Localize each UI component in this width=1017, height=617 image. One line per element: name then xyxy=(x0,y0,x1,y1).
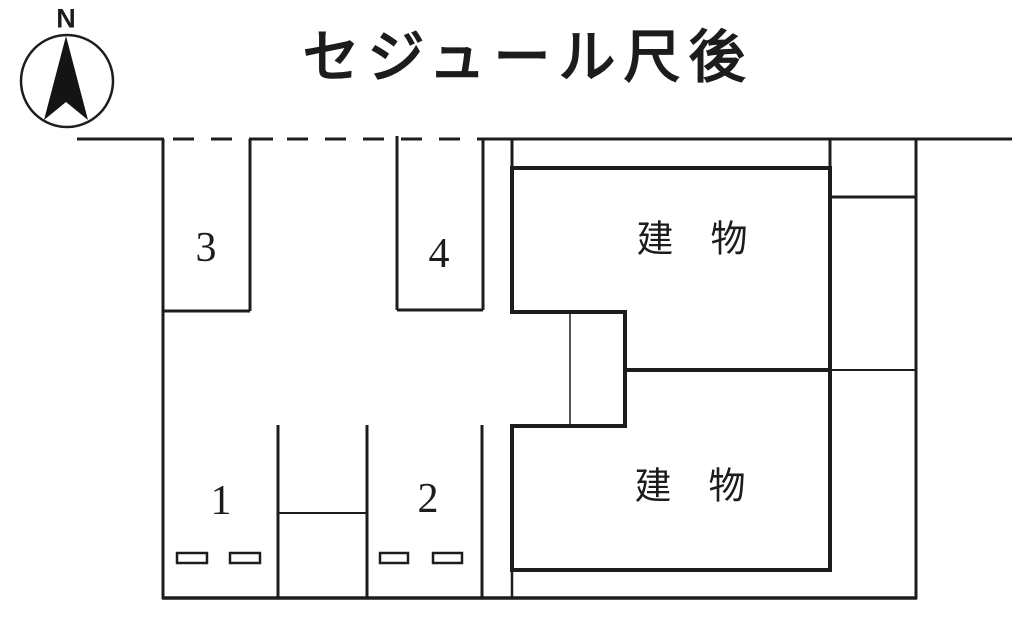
parking-space-4-label: 4 xyxy=(429,233,450,275)
building-upper-outline xyxy=(512,168,830,370)
compass-north-label: N xyxy=(56,6,76,33)
site-plan-page: N セジュール尺後 3 4 1 2 建 物 建 物 xyxy=(0,0,1017,617)
north-arrow-icon xyxy=(44,36,88,120)
parking-space-1-label: 1 xyxy=(211,480,232,522)
wheel-stopper xyxy=(380,553,408,563)
wheel-stopper xyxy=(433,553,462,563)
parking-space-2-label: 2 xyxy=(418,478,439,520)
building-lower-label: 建 物 xyxy=(635,468,746,505)
wheel-stopper xyxy=(177,553,207,563)
building-upper-label: 建 物 xyxy=(637,221,748,258)
wheel-stopper xyxy=(230,553,260,563)
parking-space-3-label: 3 xyxy=(196,227,217,269)
compass-icon xyxy=(21,35,113,127)
page-title: セジュール尺後 xyxy=(302,30,753,87)
site-plan-drawing xyxy=(0,0,1017,617)
